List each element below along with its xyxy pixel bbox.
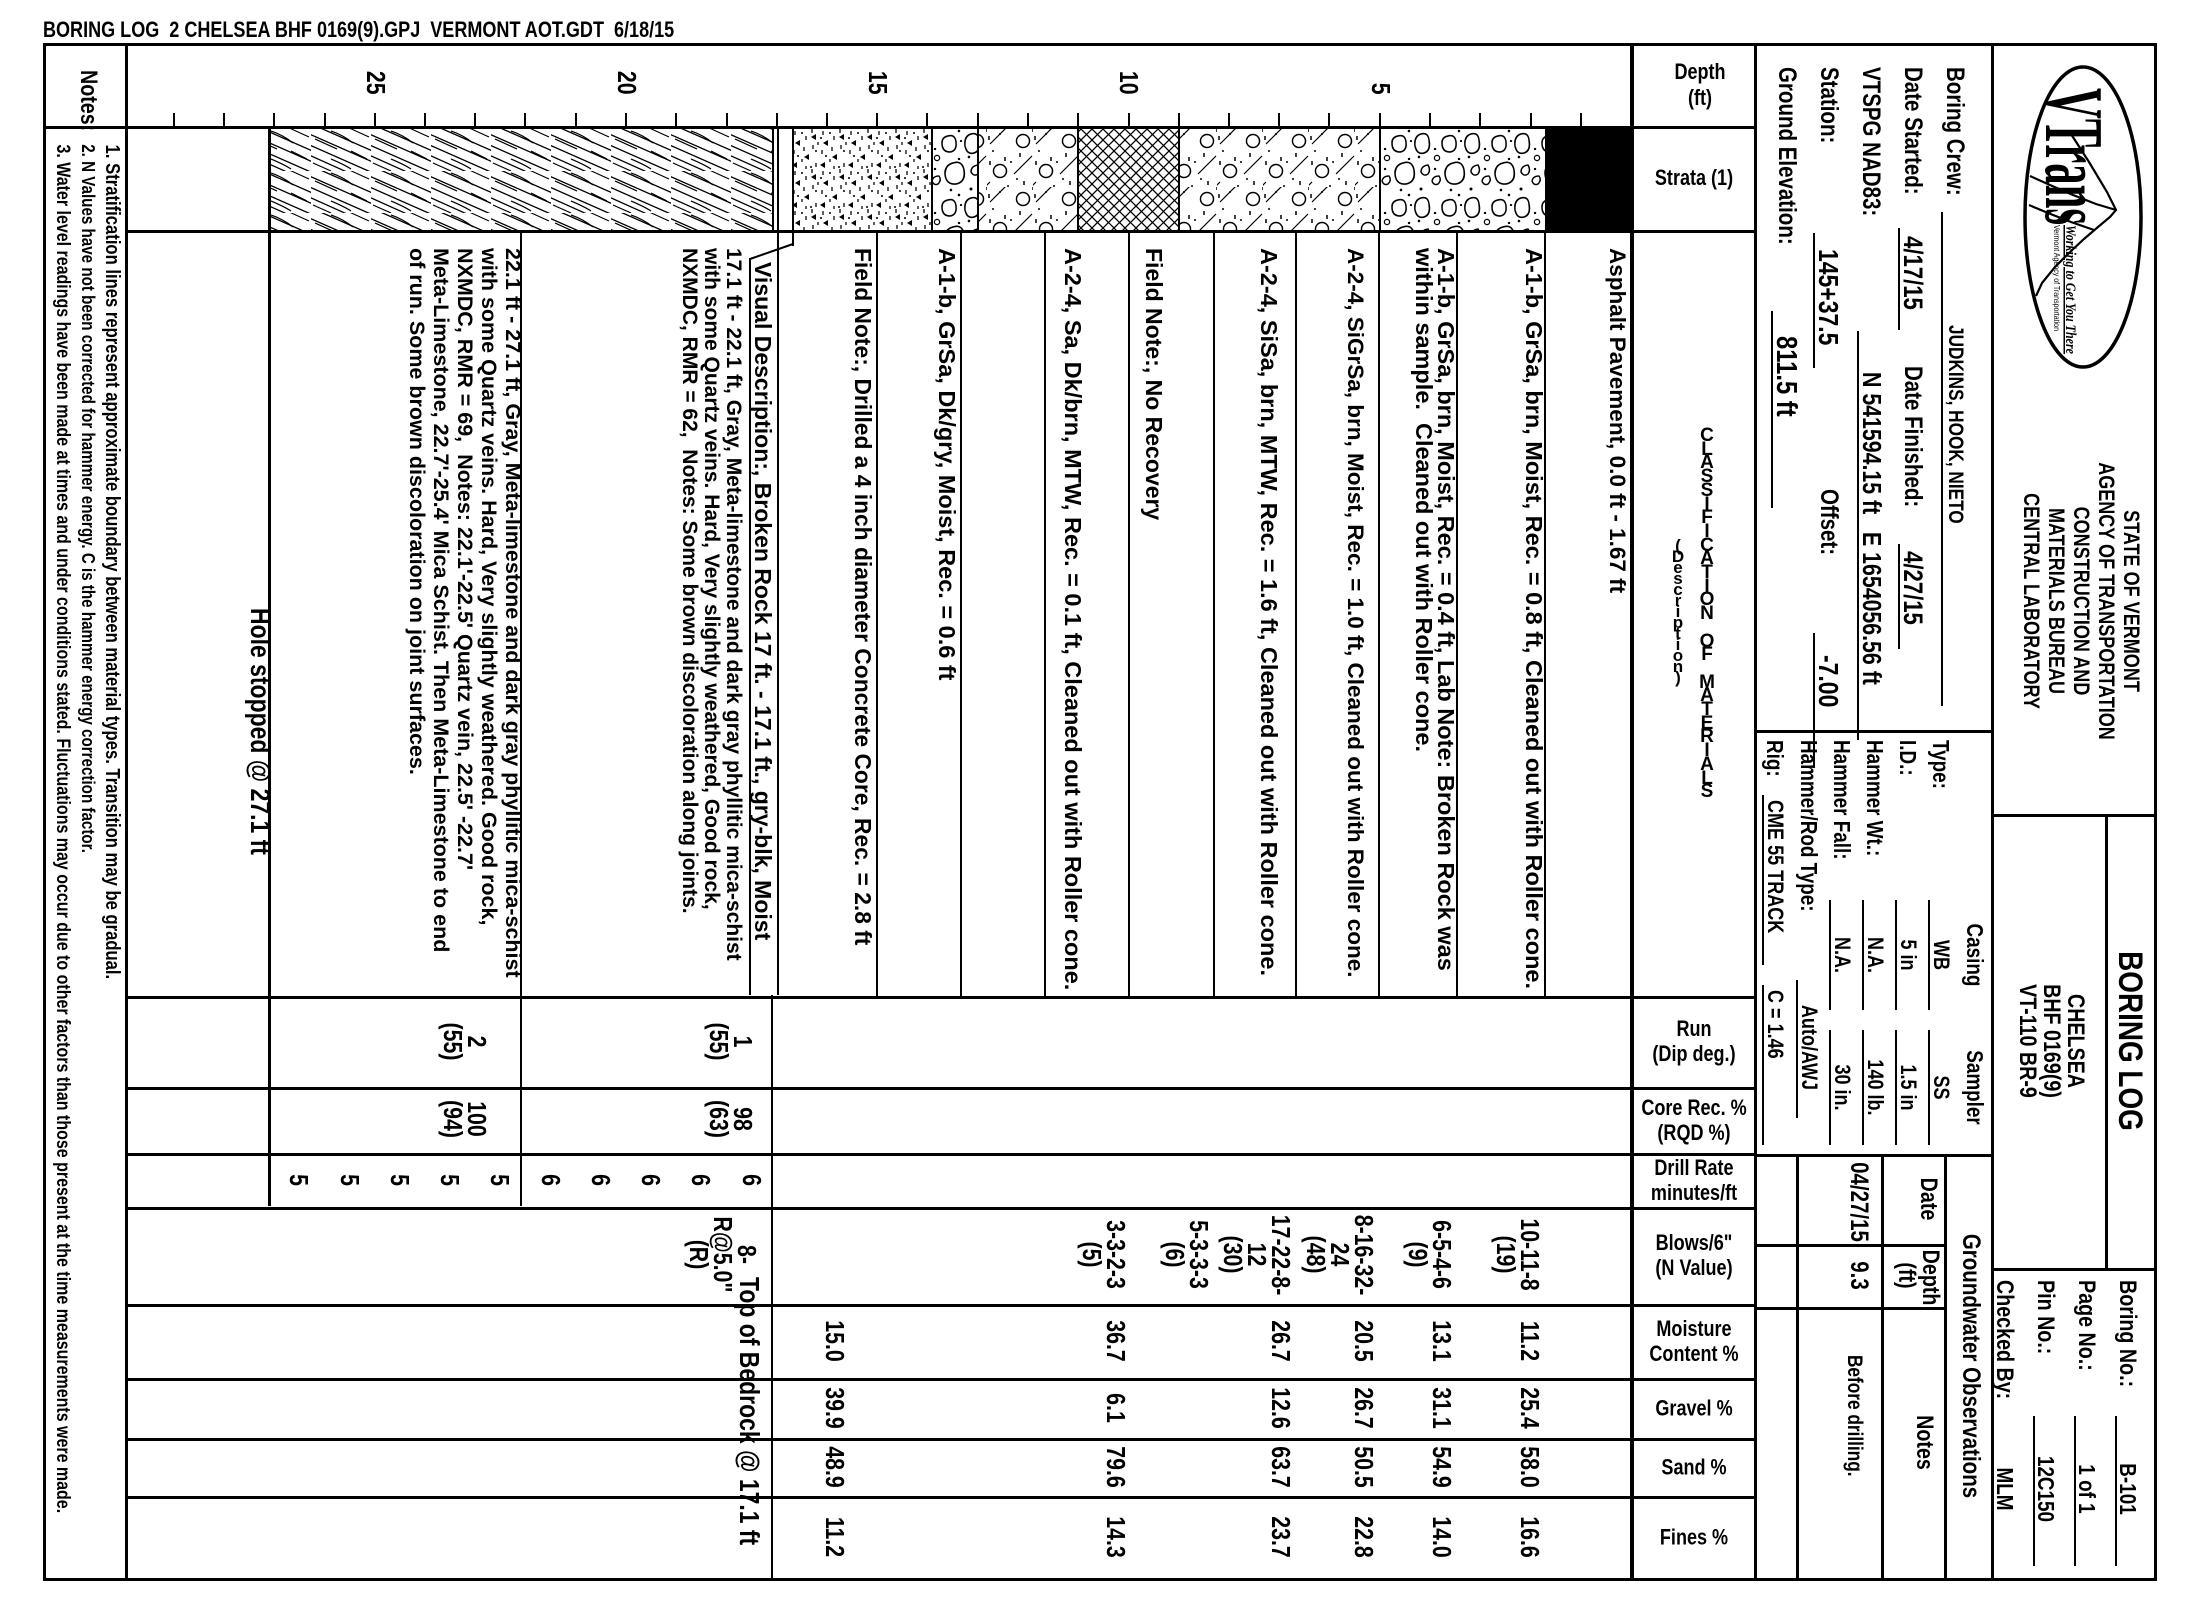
svg-text:Vermont Agency of Transportati: Vermont Agency of Transportation: [2052, 225, 2062, 331]
svg-text:VTrans: VTrans: [2027, 88, 2120, 225]
svg-text:Working to Get You There: Working to Get You There: [2062, 225, 2078, 354]
